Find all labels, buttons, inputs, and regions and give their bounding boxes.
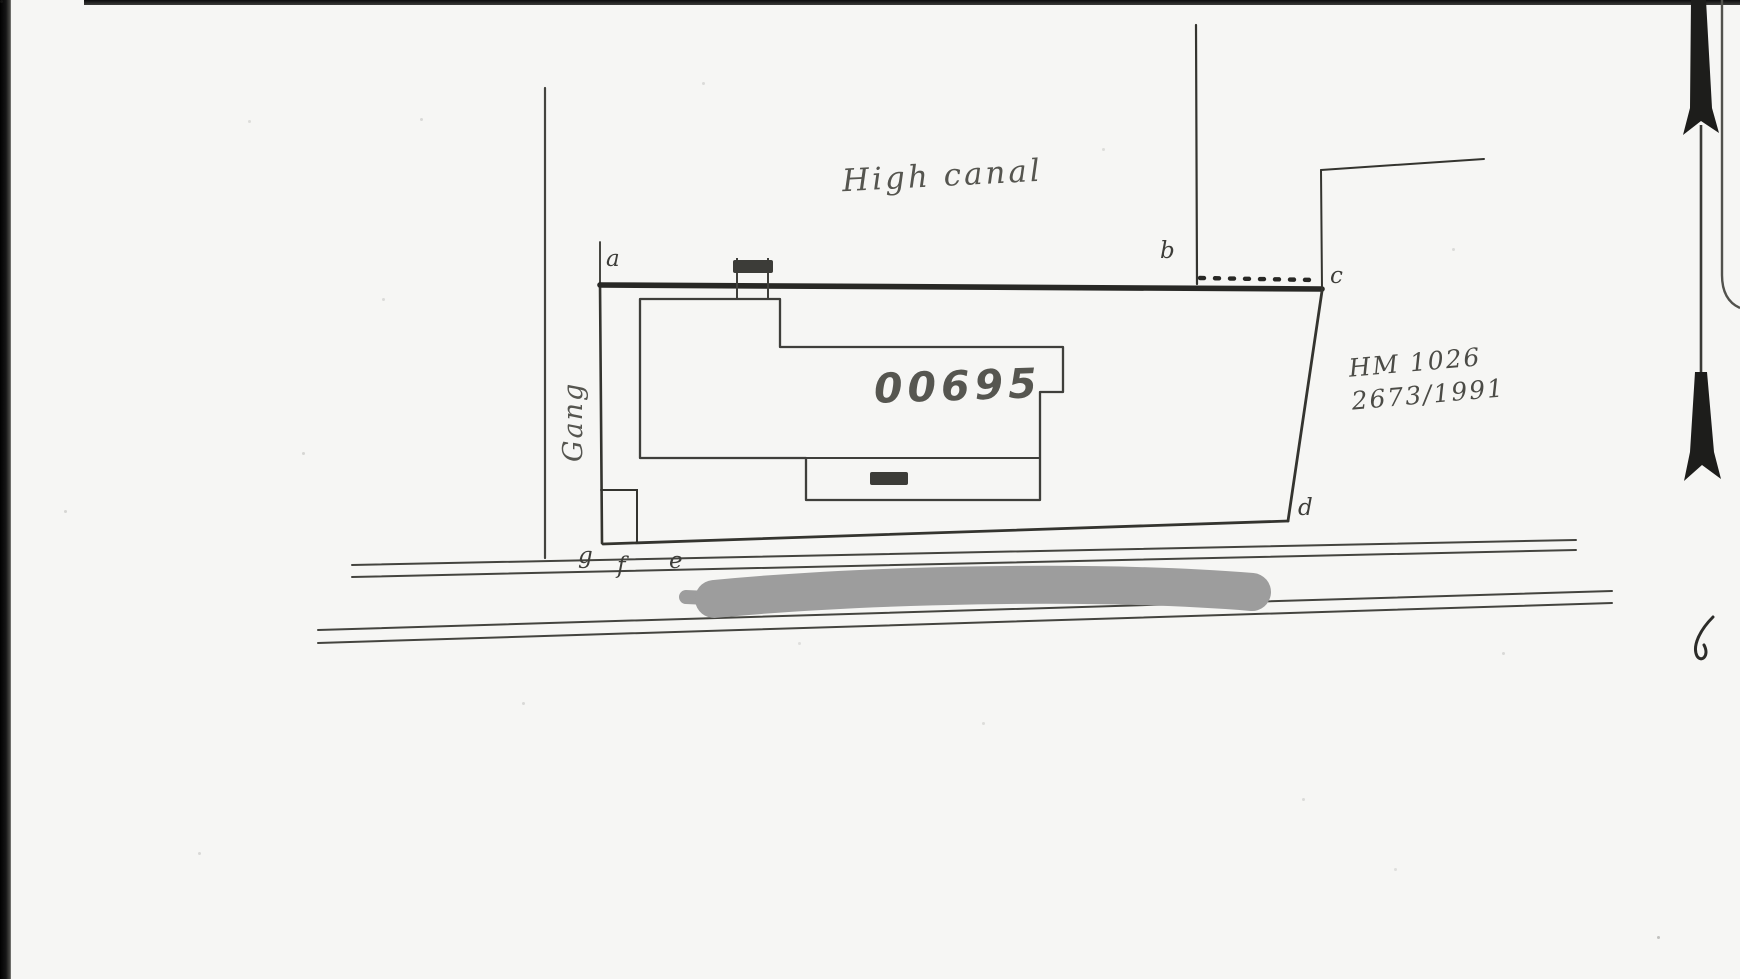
vertex-label-e: e <box>669 548 683 574</box>
scanned-survey-plan: High canal Gang 00695 HM 1026 2673/1991 … <box>0 0 1740 979</box>
plot-plan-drawing <box>0 0 1740 979</box>
flourish-mark <box>1695 617 1713 659</box>
page-edge-line <box>1722 0 1740 308</box>
vertex-label-d: d <box>1298 495 1313 521</box>
vertex-label-b: b <box>1160 238 1175 264</box>
north-arrow <box>1683 0 1721 659</box>
vertex-label-f: f <box>617 553 626 579</box>
gate-mark <box>733 258 773 299</box>
vertex-label-c: c <box>1330 263 1343 289</box>
vertex-label-g: g <box>578 543 593 569</box>
reference-number-label: HM 1026 2673/1991 <box>1347 339 1506 417</box>
parcel-boundary <box>600 25 1484 544</box>
parcel-number-label: 00695 <box>873 359 1042 413</box>
south-gate-mark <box>870 472 908 485</box>
alley-name-label: Gang <box>558 330 589 462</box>
paper-noise <box>0 0 3 3</box>
vertex-label-a: a <box>606 246 620 272</box>
redaction-mark <box>686 585 1252 599</box>
